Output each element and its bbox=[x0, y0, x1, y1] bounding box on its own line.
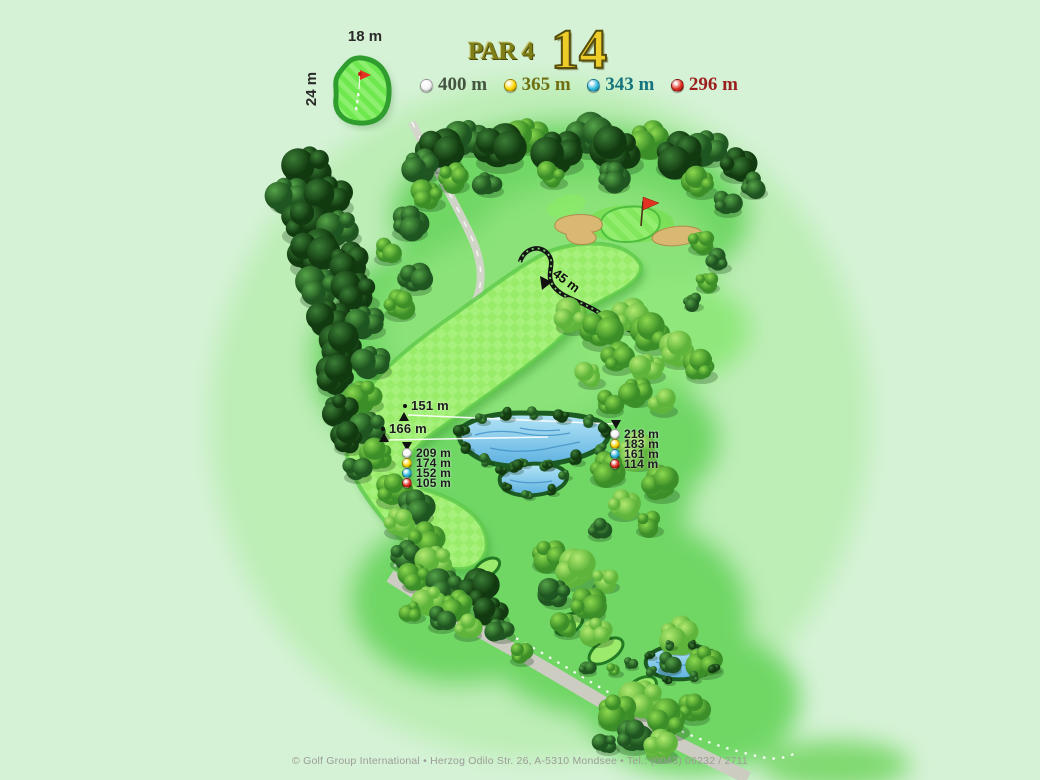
golf-hole-map: 18 m 24 m PAR 4 14 400 m365 m343 m296 m … bbox=[0, 0, 1040, 780]
tee-ball-icon-white bbox=[420, 79, 433, 92]
tee-ball-icon-white bbox=[610, 429, 620, 439]
triangle-up-icon bbox=[379, 433, 389, 442]
tee-ball-icon-blue bbox=[610, 449, 620, 459]
tee-ball-icon-red bbox=[671, 79, 684, 92]
marker-dot-icon bbox=[403, 404, 407, 408]
inset-width-label: 18 m bbox=[333, 28, 397, 45]
right-distance-group: 218 m183 m161 m114 m bbox=[610, 429, 659, 469]
carry-marker-151: 151 m bbox=[403, 398, 449, 413]
carry-label-166: 166 m bbox=[389, 421, 427, 436]
par-label: PAR 4 bbox=[468, 38, 534, 66]
marker-dot-icon bbox=[548, 266, 554, 272]
inset-depth-label: 24 m bbox=[303, 59, 321, 119]
putting-green bbox=[600, 207, 659, 243]
tee-distance-label: 296 m bbox=[689, 74, 738, 96]
tee-ball-icon-blue bbox=[587, 79, 600, 92]
triangle-up-icon bbox=[399, 412, 409, 421]
course-illustration bbox=[0, 0, 1040, 780]
inset-green-shape bbox=[336, 58, 389, 123]
triangle-down-icon bbox=[611, 420, 621, 429]
legend-entry-yellow: 365 m bbox=[504, 74, 571, 96]
tee-distance-label: 343 m bbox=[605, 74, 654, 96]
tee-ball-icon-yellow bbox=[610, 439, 620, 449]
tee-distance-label: 400 m bbox=[438, 74, 487, 96]
tee-ball-icon-white bbox=[402, 448, 412, 458]
tee-ball-icon-blue bbox=[402, 468, 412, 478]
distance-row-red: 114 m bbox=[610, 459, 659, 469]
legend-entry-blue: 343 m bbox=[587, 74, 654, 96]
tee-distance-label: 365 m bbox=[522, 74, 571, 96]
hole-number: 14 bbox=[551, 18, 607, 82]
copyright-text: © Golf Group International • Herzog Odil… bbox=[0, 755, 1040, 767]
carry-label-151: 151 m bbox=[411, 398, 449, 413]
distance-row-red: 105 m bbox=[402, 478, 451, 488]
tee-legend: 400 m365 m343 m296 m bbox=[420, 74, 738, 96]
distance-label: 114 m bbox=[624, 457, 658, 471]
tee-ball-icon-yellow bbox=[402, 458, 412, 468]
legend-entry-white: 400 m bbox=[420, 74, 487, 96]
tee-ball-icon-red bbox=[610, 459, 620, 469]
marker-dot-icon bbox=[381, 427, 385, 431]
legend-entry-red: 296 m bbox=[671, 74, 738, 96]
left-distance-group: 209 m174 m152 m105 m bbox=[402, 448, 451, 488]
tee-ball-icon-red bbox=[402, 478, 412, 488]
tee-ball-icon-yellow bbox=[504, 79, 517, 92]
distance-label: 105 m bbox=[416, 476, 451, 490]
